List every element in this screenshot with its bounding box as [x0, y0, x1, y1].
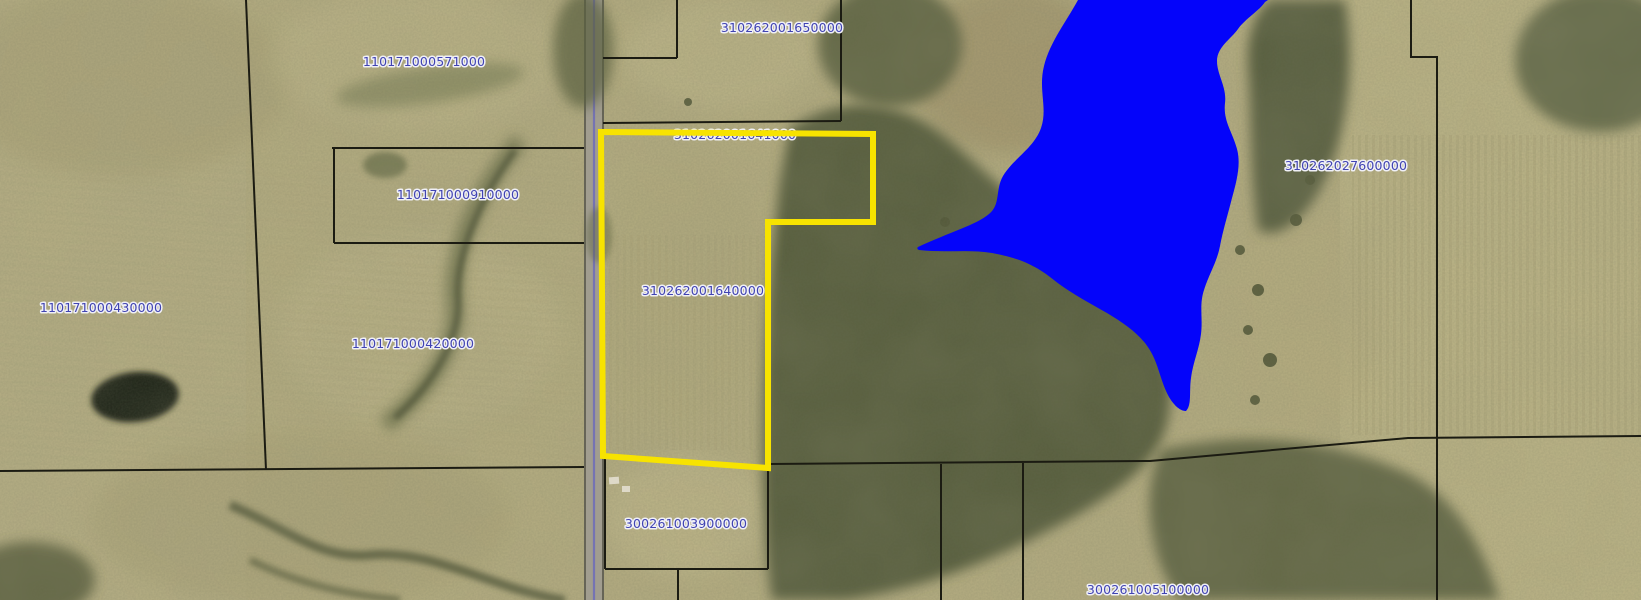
parcel-label: 110171000910000 — [397, 187, 519, 202]
map-viewport[interactable]: 110171000571000 310262001650000 31026200… — [0, 0, 1641, 600]
parcel-label: 300261003900000 — [625, 516, 747, 531]
building — [622, 486, 630, 492]
parcel-label: 300261005100000 — [1087, 582, 1209, 597]
parcel-label: 310262001640000 — [642, 283, 764, 298]
aerial-map-canvas: 110171000571000 310262001650000 31026200… — [0, 0, 1641, 600]
imagery-grain — [0, 0, 1641, 600]
parcel-label: 310262027600000 — [1285, 158, 1407, 173]
building — [609, 477, 619, 485]
parcel-label: 310262001650000 — [721, 20, 843, 35]
parcel-label: 110171000571000 — [363, 54, 485, 69]
parcel-label: 110171000420000 — [352, 336, 474, 351]
parcel-label: 110171000430000 — [40, 300, 162, 315]
